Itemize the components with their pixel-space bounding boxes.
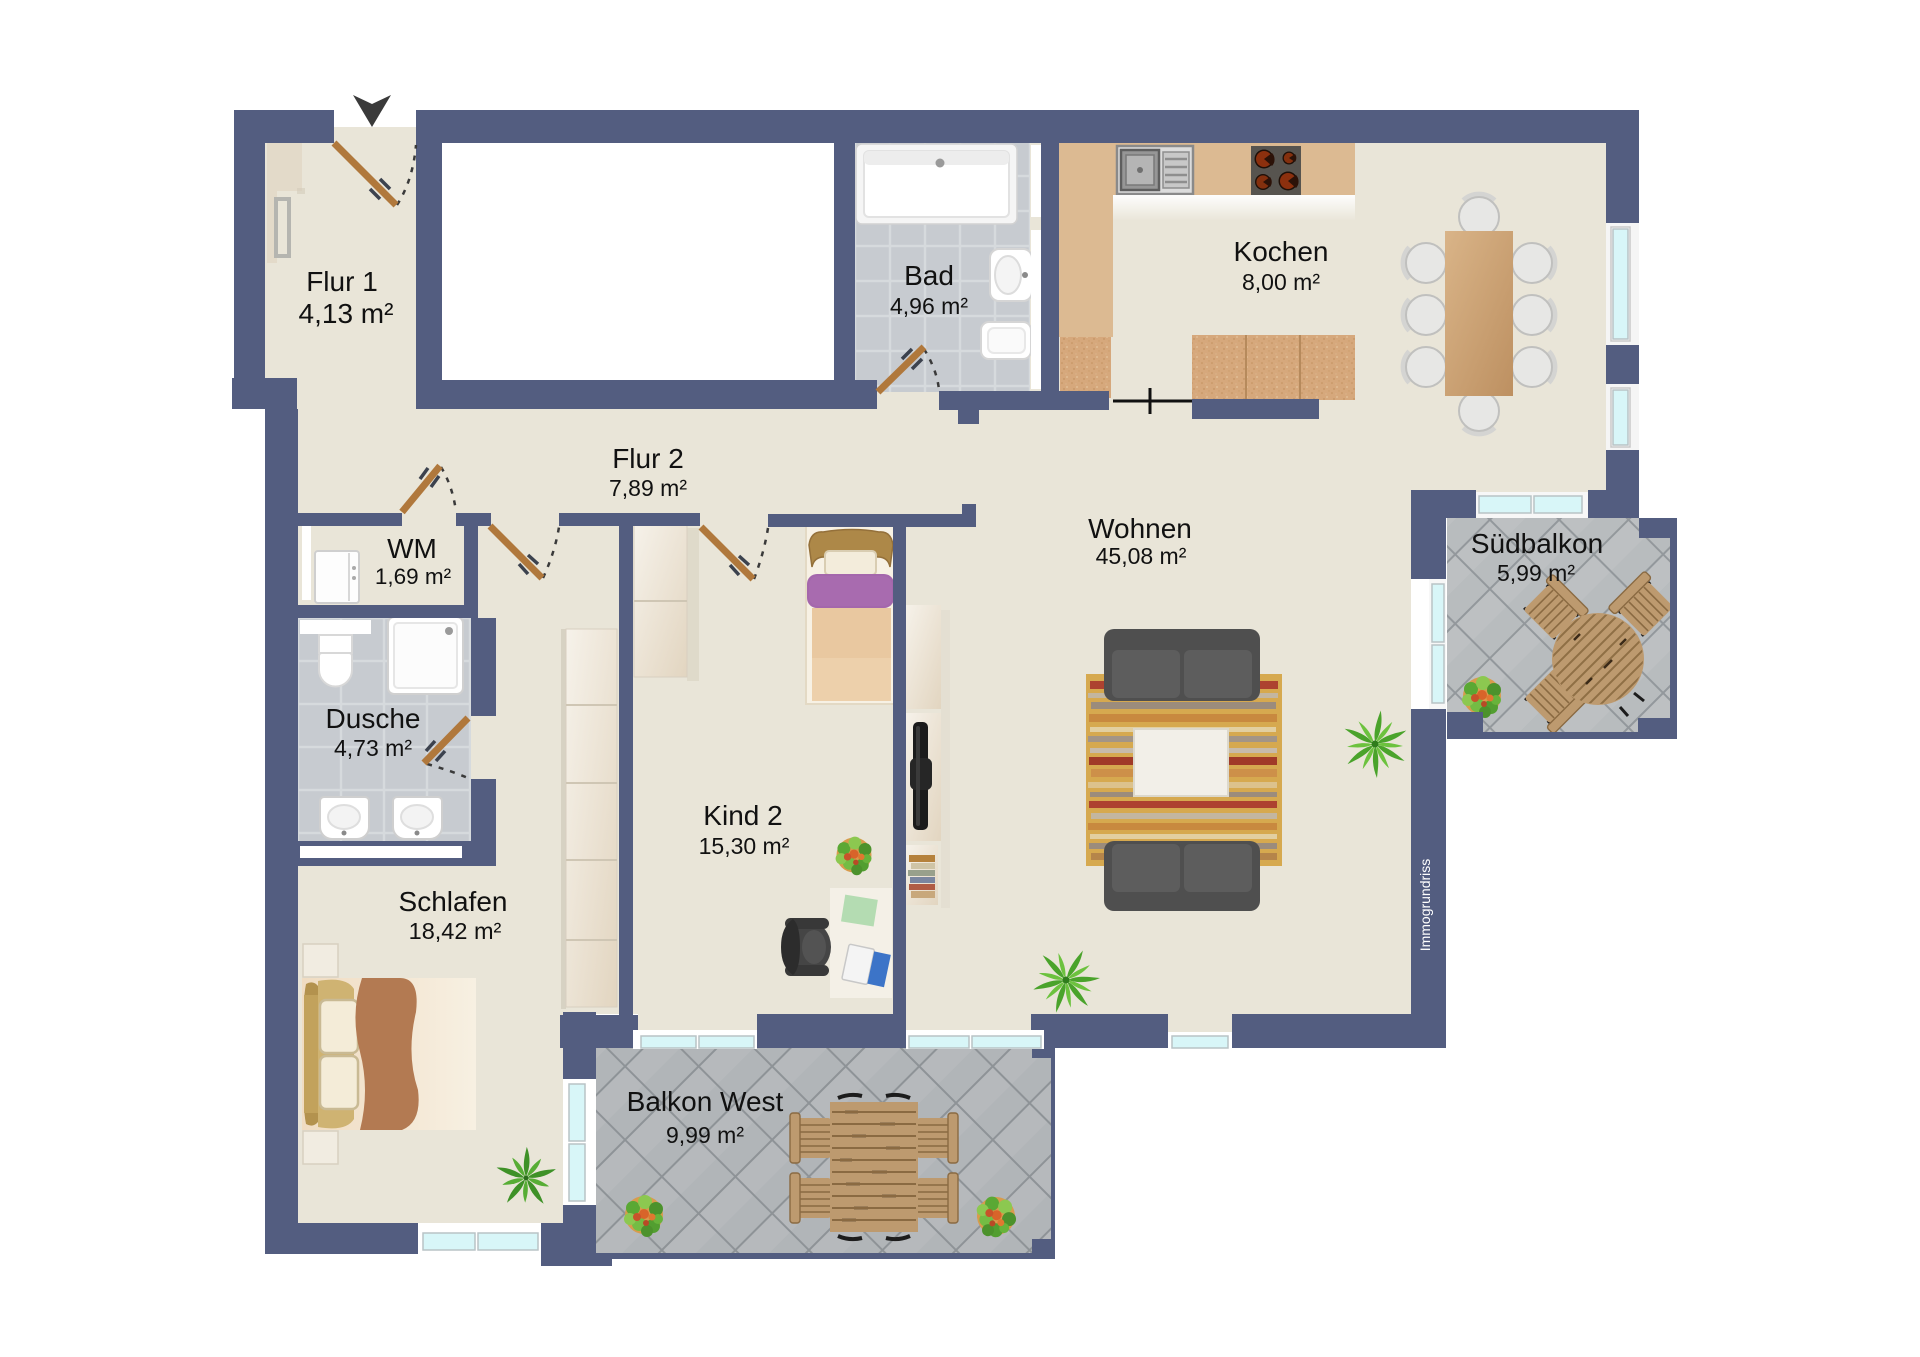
svg-text:15,30 m²: 15,30 m² — [699, 833, 790, 859]
svg-text:4,13 m²: 4,13 m² — [299, 298, 394, 329]
svg-text:Flur 1: Flur 1 — [306, 266, 378, 297]
svg-text:Flur 2: Flur 2 — [612, 443, 684, 474]
svg-text:WM: WM — [387, 533, 437, 564]
svg-text:Dusche: Dusche — [326, 703, 421, 734]
svg-text:Kochen: Kochen — [1234, 236, 1329, 267]
svg-text:Bad: Bad — [904, 260, 954, 291]
svg-text:8,00 m²: 8,00 m² — [1242, 269, 1320, 295]
svg-text:9,99 m²: 9,99 m² — [666, 1122, 744, 1148]
svg-text:4,73 m²: 4,73 m² — [334, 735, 412, 761]
svg-text:45,08 m²: 45,08 m² — [1096, 543, 1187, 569]
svg-text:Immogrundriss: Immogrundriss — [1417, 859, 1433, 952]
svg-text:Balkon West: Balkon West — [627, 1086, 784, 1117]
svg-text:Schlafen: Schlafen — [399, 886, 508, 917]
svg-text:1,69 m²: 1,69 m² — [375, 564, 452, 589]
svg-text:7,89 m²: 7,89 m² — [609, 475, 687, 501]
svg-text:5,99 m²: 5,99 m² — [1497, 560, 1575, 586]
svg-text:18,42 m²: 18,42 m² — [409, 918, 502, 944]
svg-text:Wohnen: Wohnen — [1088, 513, 1192, 544]
svg-text:4,96 m²: 4,96 m² — [890, 293, 968, 319]
svg-text:Kind 2: Kind 2 — [703, 800, 782, 831]
svg-text:Südbalkon: Südbalkon — [1471, 528, 1603, 559]
